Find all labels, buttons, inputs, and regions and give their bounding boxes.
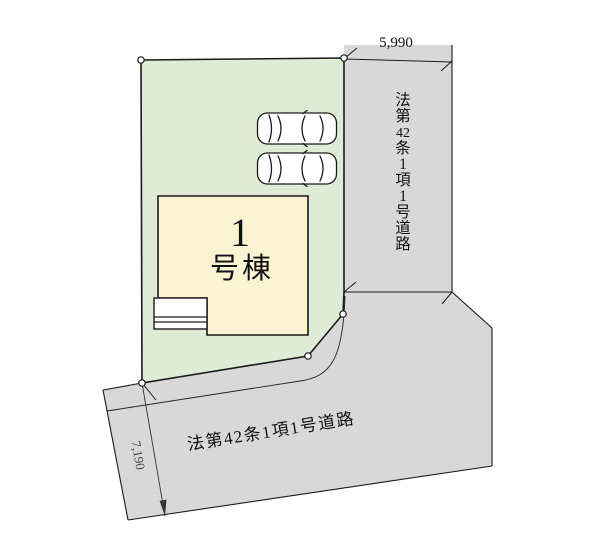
top-dimension-label: 5,990 xyxy=(379,35,413,51)
porch-steps xyxy=(154,298,207,329)
plan-canvas: 1 号棟 5,990 xyxy=(0,0,600,555)
right-road-label-char: 第 xyxy=(395,107,411,125)
right-road-label: 法 第 42 条 1 項 1 号 道 路 xyxy=(395,91,411,253)
site-plan-drawing: 1 号棟 5,990 xyxy=(0,0,600,555)
right-road-label-char: 路 xyxy=(395,235,411,253)
right-road-label-char: 1 xyxy=(399,156,407,173)
right-road-label-char: 道 xyxy=(395,219,411,237)
car-icon xyxy=(258,111,337,147)
right-road-label-char: 号 xyxy=(395,203,411,221)
car-icon xyxy=(258,151,337,187)
right-road-label-char: 42 xyxy=(396,126,410,141)
right-road-label-char: 1 xyxy=(399,188,407,205)
building-suffix: 号棟 xyxy=(210,252,274,285)
right-road-label-char: 項 xyxy=(395,172,411,189)
right-road-label-char: 法 xyxy=(395,91,411,109)
right-road-label-char: 条 xyxy=(395,139,411,157)
building-number: 1 xyxy=(230,210,250,255)
